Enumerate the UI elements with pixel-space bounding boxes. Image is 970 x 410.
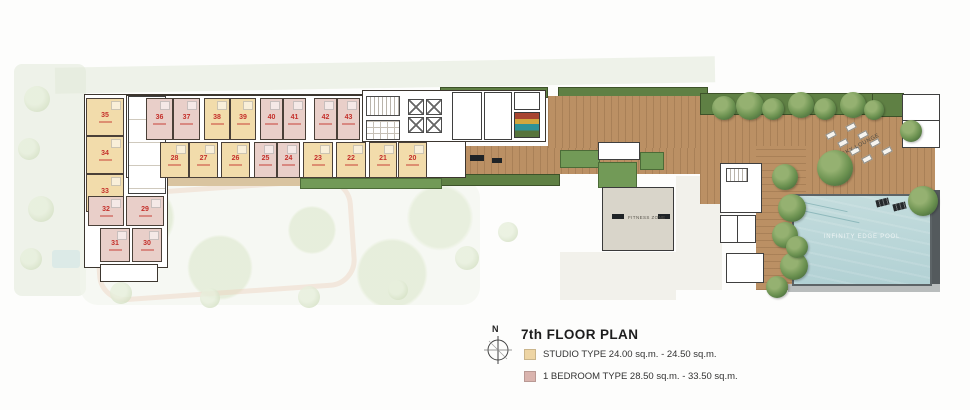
tree [712, 96, 736, 120]
unit-25-number: 25 [262, 155, 270, 162]
unit-22-number: 22 [347, 155, 355, 162]
unit-40: 40 [260, 98, 283, 140]
unit-27: 27 [189, 142, 218, 178]
unit-area-text [319, 123, 332, 125]
stairs [726, 168, 748, 182]
ghost-pool [52, 250, 80, 268]
unit-31: 31 [100, 228, 130, 262]
unit-27-number: 27 [200, 155, 208, 162]
unit-area-text [237, 123, 250, 125]
unit-39-number: 39 [239, 114, 247, 121]
planter [560, 150, 600, 168]
unit-40-number: 40 [268, 114, 276, 121]
unit-28-number: 28 [171, 155, 179, 162]
unit-area-text [288, 123, 301, 125]
unit-area-text [229, 164, 242, 166]
unit-22: 22 [336, 142, 366, 178]
tree [900, 120, 922, 142]
lift [408, 117, 424, 133]
unit-area-text [153, 123, 166, 125]
unit-20: 20 [398, 142, 427, 178]
unit-32: 32 [88, 196, 124, 226]
floor-plan-canvas: INFINITY EDGE POOL SKY LOUNGE FITNESS ZO… [0, 0, 970, 410]
unit-31-number: 31 [111, 240, 119, 247]
unit-area-text [282, 164, 295, 166]
unit-area-text [265, 123, 278, 125]
unit-37-number: 37 [183, 114, 191, 121]
legend-one-bedroom: 1 BEDROOM TYPE 28.50 sq.m. - 33.50 sq.m. [524, 371, 738, 382]
legend-studio: STUDIO TYPE 24.00 sq.m. - 24.50 sq.m. [524, 349, 717, 360]
unit-area-text [109, 249, 122, 251]
plan-title: 7th FLOOR PLAN [521, 327, 638, 342]
unit-area-text [211, 123, 224, 125]
unit-29-number: 29 [141, 206, 149, 213]
unit-area-text [168, 164, 181, 166]
unit-area-text [377, 164, 390, 166]
unit-area-text [139, 215, 152, 217]
compass-icon [482, 334, 514, 366]
tree [786, 236, 808, 258]
mailbox-room [366, 120, 400, 140]
tree [788, 92, 814, 118]
ghost-tree [200, 288, 220, 308]
unit-37: 37 [173, 98, 200, 140]
unit-36-number: 36 [156, 114, 164, 121]
unit-area-text [141, 249, 154, 251]
unit-34: 34 [86, 136, 124, 174]
deck-furniture [492, 158, 502, 163]
unit-43: 43 [337, 98, 360, 140]
unit-area-text [99, 121, 112, 123]
unit-25: 25 [254, 142, 277, 178]
unit-area-text [312, 164, 325, 166]
unit-43-number: 43 [345, 114, 353, 121]
unit-30: 30 [132, 228, 162, 262]
unit-area-text [99, 159, 112, 161]
unit-42: 42 [314, 98, 337, 140]
unit-28: 28 [160, 142, 189, 178]
unit-26: 26 [221, 142, 250, 178]
unit-area-text [342, 123, 355, 125]
unit-29: 29 [126, 196, 164, 226]
wall [737, 215, 738, 243]
service-room [726, 253, 764, 283]
ghost-tree [20, 248, 42, 270]
mech-room [484, 92, 512, 140]
unit-33-number: 33 [101, 188, 109, 195]
unit-42-number: 42 [322, 114, 330, 121]
tree [908, 186, 938, 216]
unit-36: 36 [146, 98, 173, 140]
unit-35: 35 [86, 98, 124, 136]
unit-41: 41 [283, 98, 306, 140]
unit-30-number: 30 [143, 240, 151, 247]
unit-34-number: 34 [101, 150, 109, 157]
ghost-tree [24, 86, 50, 112]
unit-24-number: 24 [285, 155, 293, 162]
unit-area-text [180, 123, 193, 125]
tree [840, 92, 866, 118]
tree [766, 276, 788, 298]
unit-area-text [259, 164, 272, 166]
ghost-tree [388, 280, 408, 300]
unit-32-number: 32 [102, 206, 110, 213]
studio-swatch [524, 349, 536, 360]
store-room [514, 92, 540, 110]
tree [736, 92, 764, 120]
unit-area-text [197, 164, 210, 166]
unit-23-number: 23 [314, 155, 322, 162]
ghost-below-fitness [560, 252, 676, 300]
tree [778, 194, 806, 222]
toilet-room [720, 215, 756, 243]
lift [408, 99, 424, 115]
ghost-tree [18, 138, 40, 160]
one-bedroom-swatch [524, 371, 536, 382]
unit-38: 38 [204, 98, 230, 140]
tree [762, 98, 784, 120]
unit-area-text [345, 164, 358, 166]
lift [426, 99, 442, 115]
ghost-tree [298, 286, 320, 308]
one-bedroom-legend-label: 1 BEDROOM TYPE 28.50 sq.m. - 33.50 sq.m. [543, 371, 738, 382]
unit-35-number: 35 [101, 112, 109, 119]
ghost-tree [455, 246, 479, 270]
unit-26-number: 26 [232, 155, 240, 162]
tree-large [817, 150, 853, 186]
planter [598, 162, 637, 188]
gym-equipment [612, 214, 624, 219]
tree [864, 100, 884, 120]
ghost-tree [110, 282, 132, 304]
unit-area-text [100, 215, 113, 217]
deck-furniture [470, 155, 484, 161]
tree [772, 164, 798, 190]
lawn-strip [300, 178, 442, 189]
ghost-tree [498, 222, 518, 242]
wing-end-room [100, 264, 158, 282]
unit-38-number: 38 [213, 114, 221, 121]
stairs [366, 96, 400, 116]
pool-label: INFINITY EDGE POOL [794, 234, 930, 240]
tree [814, 98, 836, 120]
unit-21: 21 [369, 142, 397, 178]
planter [640, 152, 664, 170]
deck-upper [548, 96, 710, 148]
ghost-tree [28, 196, 54, 222]
unit-23: 23 [303, 142, 333, 178]
kids-room [514, 112, 540, 138]
compass-north-label: N [492, 324, 499, 334]
unit-24: 24 [277, 142, 300, 178]
steam-room [598, 142, 640, 160]
studio-legend-label: STUDIO TYPE 24.00 sq.m. - 24.50 sq.m. [543, 349, 717, 360]
balcony-ledge [160, 178, 300, 186]
lift [426, 117, 442, 133]
fitness-zone-label: FITNESS ZONE [628, 215, 666, 220]
unit-20-number: 20 [409, 155, 417, 162]
unit-area-text [406, 164, 419, 166]
unit-41-number: 41 [291, 114, 299, 121]
lobby-room [452, 92, 482, 140]
unit-39: 39 [230, 98, 256, 140]
unit-21-number: 21 [379, 155, 387, 162]
